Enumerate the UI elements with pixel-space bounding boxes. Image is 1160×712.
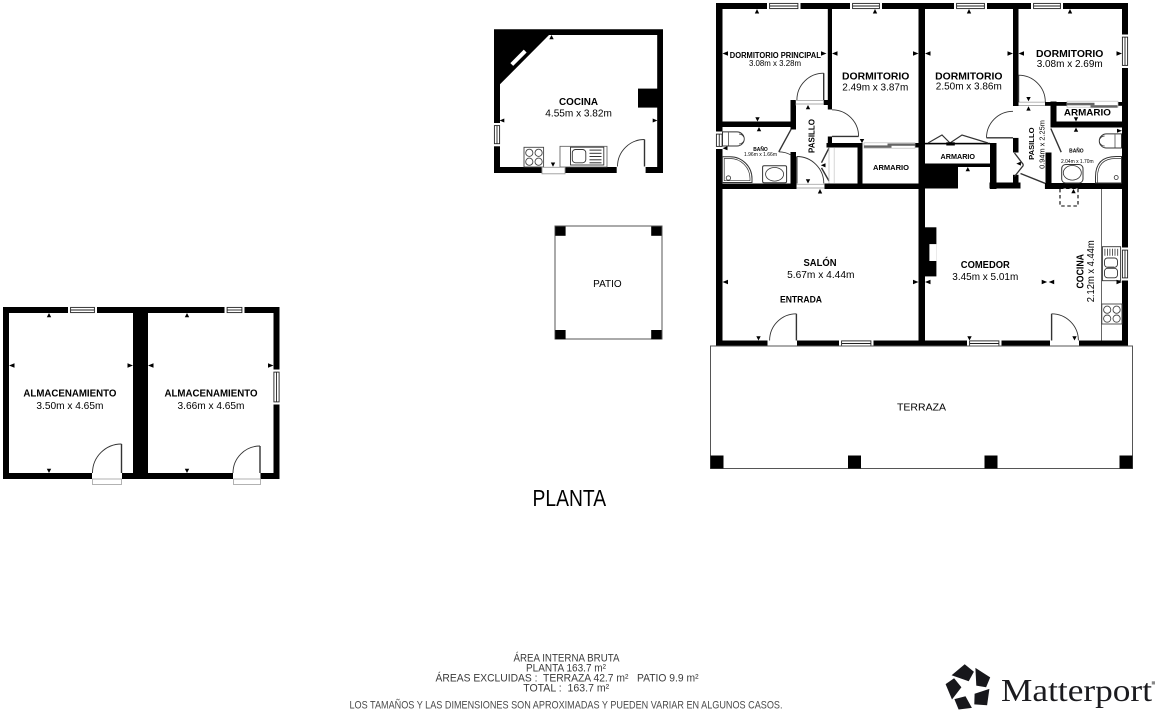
- svg-text:PLANTA: PLANTA: [533, 485, 607, 511]
- svg-text:1.96m x 1.66m: 1.96m x 1.66m: [744, 152, 777, 158]
- svg-text:SALÓN: SALÓN: [804, 256, 837, 269]
- svg-text:ARMARIO: ARMARIO: [941, 152, 976, 161]
- svg-text:TERRAZA: TERRAZA: [897, 402, 946, 414]
- svg-text:TOTAL : 163.7 m²: TOTAL : 163.7 m²: [523, 682, 609, 694]
- svg-text:PATIO: PATIO: [593, 278, 622, 290]
- svg-text:Matterport: Matterport: [1001, 672, 1152, 708]
- svg-text:2.04m x 1.70m: 2.04m x 1.70m: [1061, 159, 1094, 165]
- svg-text:COMEDOR: COMEDOR: [961, 259, 1010, 271]
- svg-text:ALMACENAMIENTO: ALMACENAMIENTO: [23, 388, 116, 400]
- svg-text:2.12m x 4.44m: 2.12m x 4.44m: [1085, 240, 1097, 302]
- svg-text:3.08m x 2.69m: 3.08m x 2.69m: [1037, 58, 1103, 70]
- svg-text:COCINA: COCINA: [559, 96, 598, 108]
- svg-text:4.55m x 3.82m: 4.55m x 3.82m: [545, 107, 612, 119]
- svg-text:3.50m x 4.65m: 3.50m x 4.65m: [36, 400, 103, 412]
- svg-text:PASILLO: PASILLO: [808, 119, 817, 153]
- svg-text:ARMARIO: ARMARIO: [873, 163, 909, 172]
- svg-text:3.08m x 3.28m: 3.08m x 3.28m: [749, 59, 801, 68]
- svg-text:ARMARIO: ARMARIO: [1064, 107, 1111, 118]
- svg-text:ALMACENAMIENTO: ALMACENAMIENTO: [165, 388, 258, 400]
- svg-text:PASILLO: PASILLO: [1027, 127, 1036, 160]
- svg-text:0.94m x 2.25m: 0.94m x 2.25m: [1037, 120, 1046, 169]
- svg-text:3.45m x 5.01m: 3.45m x 5.01m: [952, 271, 1018, 283]
- svg-text:2.49m x 3.87m: 2.49m x 3.87m: [842, 81, 908, 93]
- svg-text:ENTRADA: ENTRADA: [780, 294, 822, 304]
- svg-text:5.67m x 4.44m: 5.67m x 4.44m: [787, 269, 855, 281]
- svg-text:BAÑO: BAÑO: [1069, 148, 1084, 155]
- svg-text:2.50m x 3.86m: 2.50m x 3.86m: [936, 81, 1002, 93]
- svg-text:3.66m x 4.65m: 3.66m x 4.65m: [178, 400, 245, 412]
- svg-text:LOS TAMAÑOS Y LAS DIMENSIONES: LOS TAMAÑOS Y LAS DIMENSIONES SON APROXI…: [350, 698, 783, 711]
